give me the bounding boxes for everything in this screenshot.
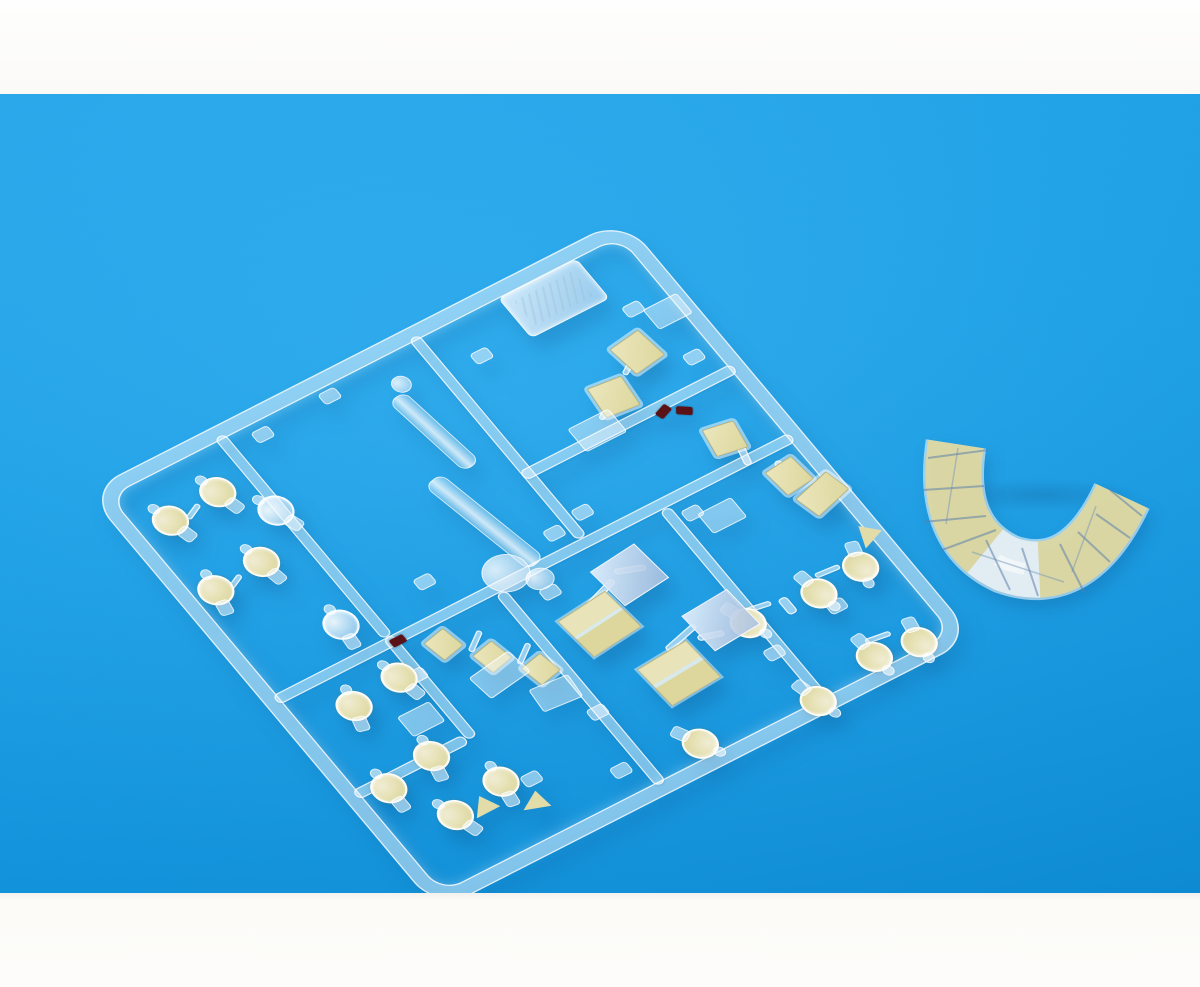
red-painted-part — [676, 406, 693, 415]
blue-backdrop — [0, 94, 1200, 893]
photo-bottom-border — [0, 893, 1200, 987]
lamp-stem — [351, 715, 372, 733]
sprue — [88, 220, 973, 893]
photo-top-border — [0, 0, 1200, 94]
canopy-part — [896, 392, 1196, 622]
